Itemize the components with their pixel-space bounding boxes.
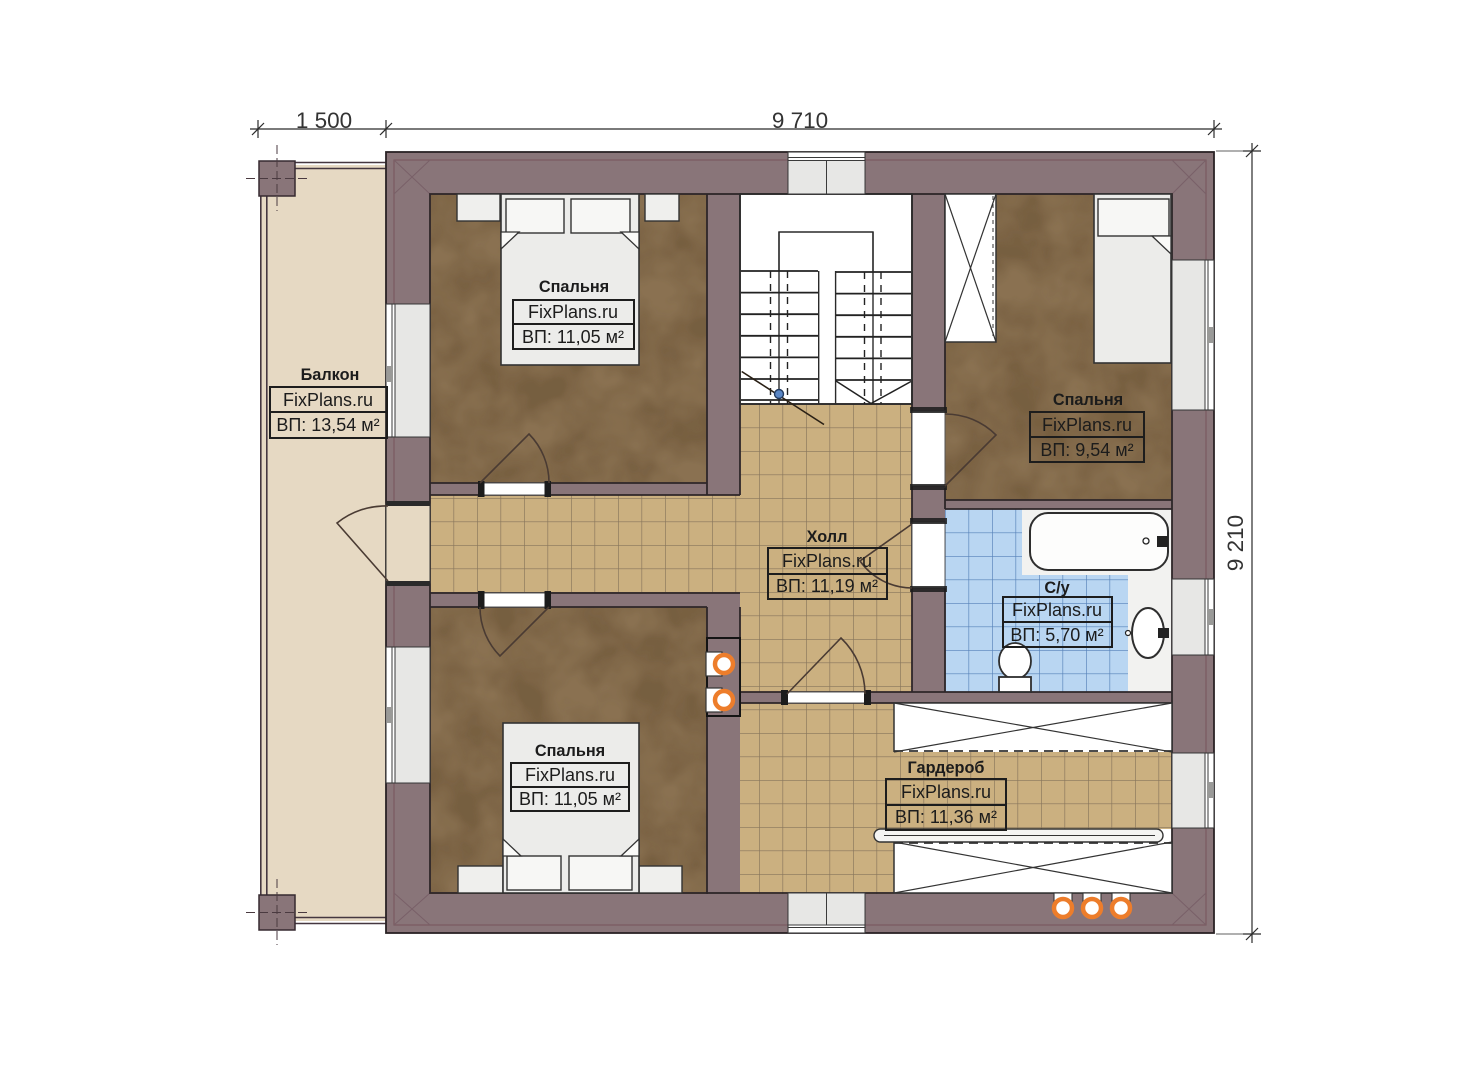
- svg-text:9 710: 9 710: [772, 108, 828, 133]
- svg-text:ВП: 9,54 м²: ВП: 9,54 м²: [1040, 440, 1133, 460]
- svg-text:FixPlans.ru: FixPlans.ru: [528, 302, 618, 322]
- svg-text:Спальня: Спальня: [535, 742, 605, 760]
- svg-text:ВП: 11,05 м²: ВП: 11,05 м²: [519, 789, 621, 809]
- svg-text:FixPlans.ru: FixPlans.ru: [283, 390, 373, 410]
- svg-text:ВП: 11,36 м²: ВП: 11,36 м²: [895, 807, 997, 827]
- svg-text:ВП: 11,19 м²: ВП: 11,19 м²: [776, 576, 878, 596]
- svg-text:ВП: 13,54 м²: ВП: 13,54 м²: [276, 415, 379, 435]
- svg-text:Спальня: Спальня: [539, 278, 609, 296]
- svg-text:Гардероб: Гардероб: [908, 759, 985, 777]
- svg-text:FixPlans.ru: FixPlans.ru: [525, 765, 615, 785]
- svg-text:FixPlans.ru: FixPlans.ru: [1042, 415, 1132, 435]
- svg-text:FixPlans.ru: FixPlans.ru: [1012, 600, 1102, 620]
- svg-text:ВП: 5,70 м²: ВП: 5,70 м²: [1010, 625, 1103, 645]
- svg-text:9 210: 9 210: [1223, 515, 1248, 571]
- svg-text:Спальня: Спальня: [1053, 391, 1123, 409]
- svg-text:С/у: С/у: [1044, 579, 1069, 597]
- svg-text:Балкон: Балкон: [301, 366, 360, 384]
- svg-text:ВП: 11,05 м²: ВП: 11,05 м²: [522, 327, 624, 347]
- svg-text:FixPlans.ru: FixPlans.ru: [901, 782, 991, 802]
- svg-text:Холл: Холл: [807, 528, 848, 546]
- svg-text:1 500: 1 500: [296, 108, 352, 133]
- svg-text:FixPlans.ru: FixPlans.ru: [782, 551, 872, 571]
